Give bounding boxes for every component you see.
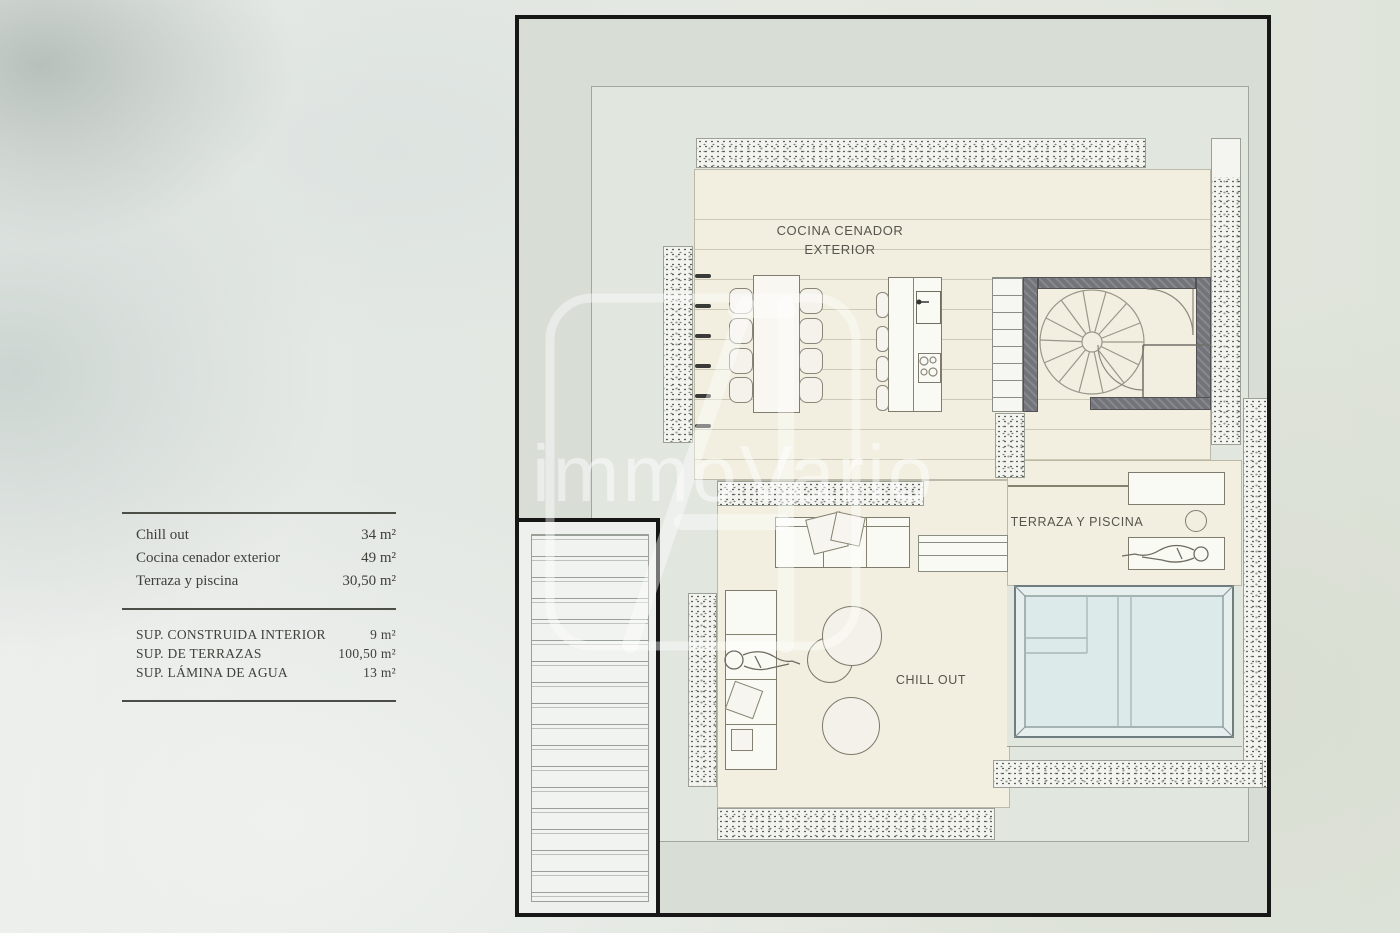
legend-divider-top [122, 512, 396, 514]
legend-row: SUP. CONSTRUIDA INTERIOR 9 m² [122, 627, 396, 643]
legend-value: 30,50 m² [342, 573, 396, 590]
plot-border [515, 15, 1271, 917]
legend-label: SUP. CONSTRUIDA INTERIOR [122, 627, 326, 643]
legend-label: Chill out [122, 527, 189, 544]
legend-divider-middle [122, 608, 396, 610]
legend-label: Terraza y piscina [122, 573, 238, 590]
legend-label: SUP. LÁMINA DE AGUA [122, 665, 288, 681]
legend-value: 34 m² [361, 527, 396, 544]
legend-row: SUP. DE TERRAZAS 100,50 m² [122, 646, 396, 662]
legend-row: Cocina cenador exterior 49 m² [122, 550, 396, 567]
site-plan: COCINA CENADOR EXTERIOR [515, 15, 1271, 917]
legend-value: 100,50 m² [338, 646, 396, 662]
legend-label: SUP. DE TERRAZAS [122, 646, 262, 662]
legend-row: SUP. LÁMINA DE AGUA 13 m² [122, 665, 396, 681]
legend-value: 9 m² [370, 627, 396, 643]
legend-row: Chill out 34 m² [122, 527, 396, 544]
floor-plan-page: Chill out 34 m² Cocina cenador exterior … [0, 0, 1400, 933]
area-legend: Chill out 34 m² Cocina cenador exterior … [122, 505, 396, 705]
legend-row: Terraza y piscina 30,50 m² [122, 573, 396, 590]
legend-divider-bottom [122, 700, 396, 702]
legend-value: 49 m² [361, 550, 396, 567]
legend-value: 13 m² [363, 665, 396, 681]
legend-label: Cocina cenador exterior [122, 550, 280, 567]
